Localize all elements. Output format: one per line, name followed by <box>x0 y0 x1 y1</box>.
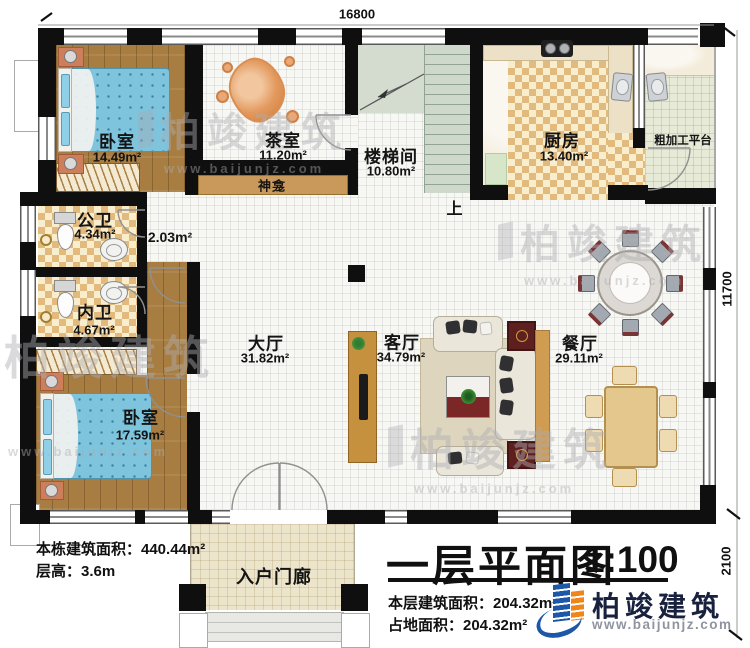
room-area-bedroom2: 17.59m² <box>116 428 164 443</box>
shrine-label: 神龛 <box>258 176 286 195</box>
floor-area: 本层建筑面积：204.32m² <box>388 592 557 613</box>
room-label-porch: 入户门廊 <box>236 563 312 589</box>
room-area-tearoom: 11.20m² <box>259 148 307 163</box>
building-total-area: 本栋建筑面积：440.44m² <box>36 538 205 559</box>
room-label-private-bath: 内卫 <box>77 299 113 324</box>
footprint-area: 占地面积：204.32m² <box>388 614 527 635</box>
dimension-bottom-right: 2100 <box>719 547 734 576</box>
dimension-top: 16800 <box>339 7 375 22</box>
room-label-platform: 粗加工平台 <box>654 132 712 148</box>
title-underline <box>388 578 668 582</box>
floor-height: 层高：3.6m <box>36 560 115 581</box>
room-area-public-bath: 4.34m² <box>74 227 115 242</box>
room-area-stairwell: 10.80m² <box>367 164 415 179</box>
room-area-dining: 29.11m² <box>555 351 603 366</box>
scale-label: 1:100 <box>584 539 679 581</box>
room-area-hall: 31.82m² <box>241 351 289 366</box>
stairs-up-label: 上 <box>446 195 463 219</box>
room-area-kitchen: 13.40m² <box>540 149 588 164</box>
room-area-living: 34.79m² <box>377 350 425 365</box>
room-area-corridor: 2.03m² <box>148 229 192 245</box>
room-area-private-bath: 4.67m² <box>73 323 114 338</box>
room-label-bedroom2: 卧室 <box>123 404 159 429</box>
brand-url: www.baijunjz.com <box>592 617 733 632</box>
room-area-bedroom1: 14.49m² <box>93 150 141 165</box>
floor-plan-canvas: 柏竣建筑 www.baijunjz.com 柏竣建筑 www.baijunjz.… <box>0 0 750 648</box>
dimension-right: 11700 <box>720 271 735 306</box>
brand-logo-icon <box>536 580 590 640</box>
